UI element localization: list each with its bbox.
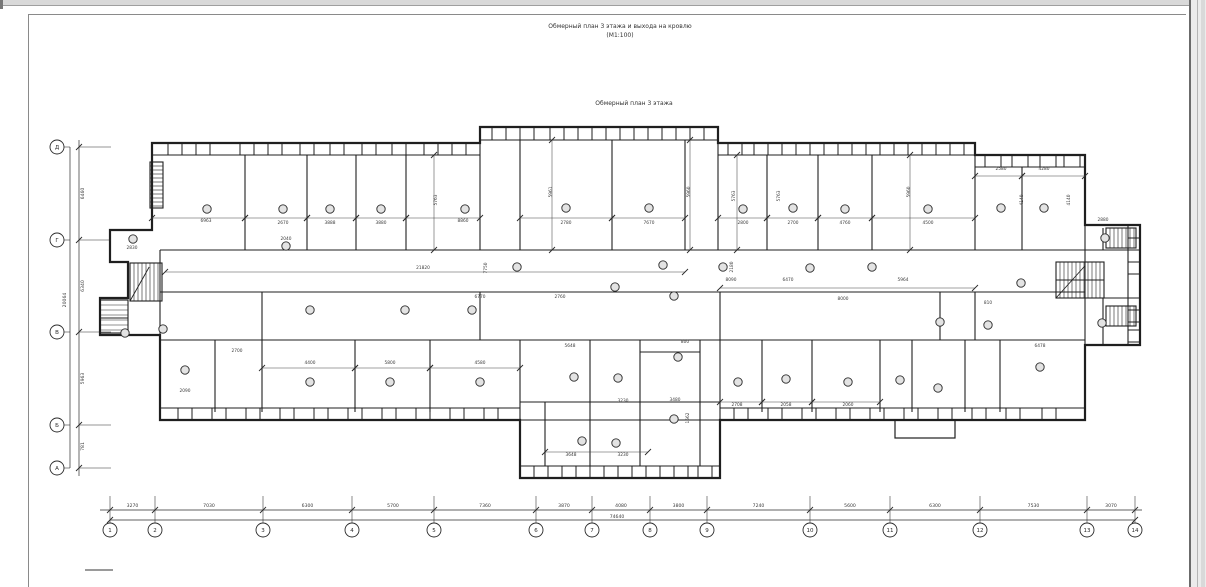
dim-text: 5763 <box>776 190 782 201</box>
room-marker <box>306 306 314 314</box>
dim-text: 800 <box>681 339 689 345</box>
room-marker <box>670 415 678 423</box>
axis-span-dim: 781 <box>80 442 86 451</box>
axis-span-dim: 6300 <box>302 503 314 509</box>
dim-text: 3230 <box>618 398 629 404</box>
dim-text: 5800 <box>385 360 396 366</box>
dim-text: 2180 <box>729 261 735 272</box>
dim-text: 8000 <box>838 296 849 302</box>
room-marker <box>934 384 942 392</box>
dim-text: 21820 <box>416 265 430 271</box>
dim-text: 2708 <box>732 402 743 408</box>
dim-text: 4280 <box>1039 166 1050 172</box>
room-marker <box>570 373 578 381</box>
dim-text: 5763 <box>433 194 439 205</box>
room-marker <box>936 318 944 326</box>
room-marker <box>734 378 742 386</box>
dim-text: 6963 <box>201 218 212 224</box>
dim-text: 3230 <box>618 452 629 458</box>
dim-text: 6470 <box>783 277 794 283</box>
axis-span-dim: 3800 <box>673 503 685 509</box>
dim-text: 5763 <box>731 190 737 201</box>
dim-text: 6478 <box>1035 343 1046 349</box>
room-marker <box>670 292 678 300</box>
axis-bubble-label: Б <box>55 423 59 429</box>
axis-total-dim: 20064 <box>62 293 68 308</box>
room-marker <box>1101 234 1109 242</box>
room-marker <box>1017 279 1025 287</box>
dim-text: 5961 <box>548 186 554 197</box>
axis-bubble-label: 9 <box>705 528 709 534</box>
room-marker <box>924 205 932 213</box>
room-marker <box>282 242 290 250</box>
dim-text: 2700 <box>232 348 243 354</box>
dim-text: 4400 <box>305 360 316 366</box>
axis-bubble-label: 7 <box>590 528 594 534</box>
dim-text: 2800 <box>738 220 749 226</box>
axis-bubble-label: 6 <box>534 528 538 534</box>
room-marker <box>614 374 622 382</box>
room-marker <box>129 235 137 243</box>
room-marker <box>401 306 409 314</box>
room-marker <box>844 378 852 386</box>
room-marker <box>782 375 790 383</box>
dim-text: 7750 <box>483 262 489 273</box>
dim-text: 2090 <box>180 388 191 394</box>
room-marker <box>181 366 189 374</box>
dim-text: 2880 <box>1098 217 1109 223</box>
axis-span-dim: 3270 <box>127 503 139 509</box>
dim-text: 2670 <box>278 220 289 226</box>
room-marker <box>868 263 876 271</box>
dim-text: 4580 <box>475 360 486 366</box>
dim-text: 7670 <box>644 220 655 226</box>
dim-text: 4140 <box>1066 194 1072 205</box>
axis-bubble-label: 2 <box>153 528 157 534</box>
dim-text: 8860 <box>458 218 469 224</box>
axis-span-dim: 7240 <box>753 503 765 509</box>
axis-bubble-label: 5 <box>432 528 436 534</box>
dim-text: 2700 <box>788 220 799 226</box>
room-marker <box>306 378 314 386</box>
dim-text: 3888 <box>325 220 336 226</box>
dim-text: 3480 <box>670 397 681 403</box>
dim-text: 5960 <box>686 186 692 197</box>
room-marker <box>578 437 586 445</box>
room-marker <box>476 378 484 386</box>
axis-span-dim: 5700 <box>387 503 399 509</box>
axis-span-dim: 6460 <box>80 188 86 200</box>
stair-run-arrow <box>130 267 149 301</box>
floor-plan-canvas: 6963267038883880886027807670280027004760… <box>0 0 1206 587</box>
room-marker <box>719 263 727 271</box>
room-marker <box>562 204 570 212</box>
room-marker <box>1040 204 1048 212</box>
stair-run-arrow <box>1056 266 1085 298</box>
room-marker <box>645 204 653 212</box>
room-marker <box>326 205 334 213</box>
dim-text: 4760 <box>840 220 851 226</box>
axis-bubble-label: 4 <box>350 528 354 534</box>
room-marker <box>461 205 469 213</box>
room-marker <box>806 264 814 272</box>
axis-bubble-label: 11 <box>887 528 894 534</box>
room-marker <box>789 204 797 212</box>
dim-text: 2058 <box>781 402 792 408</box>
room-marker <box>659 261 667 269</box>
axis-bubble-label: В <box>55 330 59 336</box>
room-marker <box>896 376 904 384</box>
axis-span-dim: 6340 <box>80 280 86 292</box>
room-marker <box>612 439 620 447</box>
axis-bubble-label: А <box>55 466 59 472</box>
axis-span-dim: 6300 <box>929 503 941 509</box>
room-marker <box>611 283 619 291</box>
room-marker <box>377 205 385 213</box>
axis-bubble-label: 14 <box>1132 528 1139 534</box>
room-marker <box>513 263 521 271</box>
dim-text: 810 <box>984 300 992 306</box>
axis-span-dim: 7360 <box>479 503 491 509</box>
room-marker <box>121 329 129 337</box>
room-marker <box>386 378 394 386</box>
axis-total-dim: 74640 <box>610 514 625 520</box>
axis-bubble-label: 3 <box>261 528 265 534</box>
dim-text: 3880 <box>376 220 387 226</box>
dim-text: 2780 <box>561 220 572 226</box>
axis-span-dim: 7530 <box>1028 503 1040 509</box>
room-marker <box>984 321 992 329</box>
dim-text: 6770 <box>475 294 486 300</box>
dim-text: 2060 <box>843 402 854 408</box>
scrollbar-line <box>1197 0 1198 587</box>
axis-span-dim: 3870 <box>558 503 570 509</box>
dim-text: 5960 <box>906 186 912 197</box>
axis-bubble-label: 10 <box>807 528 814 534</box>
axis-bubble-label: 12 <box>977 528 984 534</box>
axis-span-dim: 4080 <box>615 503 627 509</box>
axis-span-dim: 3070 <box>1105 503 1117 509</box>
dim-text: 2760 <box>555 294 566 300</box>
dim-text: 4140 <box>1019 194 1025 205</box>
dim-text: 2580 <box>996 166 1007 172</box>
scrollbar-thumb[interactable] <box>1201 0 1205 587</box>
axis-span-dim: 5600 <box>844 503 856 509</box>
axis-bubble-label: Д <box>55 145 60 151</box>
dim-text: 2040 <box>281 236 292 242</box>
axis-span-dim: 5963 <box>80 373 86 385</box>
stair-block <box>1106 306 1136 326</box>
dim-text: 2830 <box>127 245 138 251</box>
room-marker <box>279 205 287 213</box>
room-marker <box>203 205 211 213</box>
drawing-viewer-page: Обмерный план 3 этажа и выхода на кровлю… <box>0 0 1206 587</box>
axis-bubble-label: 13 <box>1084 528 1091 534</box>
dim-text: 3648 <box>566 452 577 458</box>
axis-span-dim: 7030 <box>203 503 215 509</box>
axis-bubble-label: 1 <box>108 528 112 534</box>
dim-text: 5648 <box>565 343 576 349</box>
room-marker <box>841 205 849 213</box>
dim-text: 8090 <box>726 277 737 283</box>
room-marker <box>739 205 747 213</box>
room-marker <box>468 306 476 314</box>
dim-text: 1562 <box>685 412 691 423</box>
room-marker <box>1036 363 1044 371</box>
room-marker <box>674 353 682 361</box>
porch <box>895 420 955 438</box>
room-marker <box>159 325 167 333</box>
dim-text: 4500 <box>923 220 934 226</box>
dim-text: 5964 <box>898 277 909 283</box>
room-marker <box>997 204 1005 212</box>
axis-bubble-label: 8 <box>648 528 652 534</box>
room-marker <box>1098 319 1106 327</box>
bottom-scroll-indicator <box>85 569 113 571</box>
